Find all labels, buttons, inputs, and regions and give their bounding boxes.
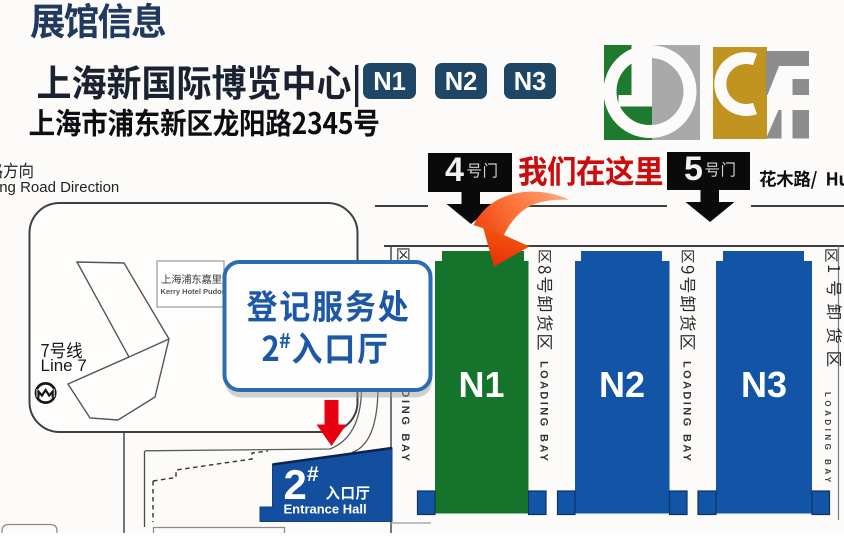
svg-text:Longyang Road Direction: Longyang Road Direction <box>0 179 119 196</box>
svg-text:N1: N1 <box>458 364 504 405</box>
svg-text:LOADING BAY: LOADING BAY <box>538 361 550 463</box>
svg-text:N3: N3 <box>741 364 787 405</box>
svg-text:5: 5 <box>684 150 703 188</box>
svg-text:N2: N2 <box>445 68 478 96</box>
svg-text:Entrance Hall: Entrance Hall <box>284 502 367 517</box>
svg-text:LOADING BAY: LOADING BAY <box>823 392 832 486</box>
svg-text:N2: N2 <box>599 364 645 405</box>
svg-text:#: # <box>307 463 319 486</box>
svg-text:LOADING BAY: LOADING BAY <box>681 361 693 463</box>
svg-text:N3: N3 <box>514 68 547 96</box>
svg-text:Kerry Hotel Pudong: Kerry Hotel Pudong <box>161 287 232 296</box>
svg-text:Line 7: Line 7 <box>41 356 87 375</box>
svg-text:N1: N1 <box>373 68 406 96</box>
svg-text:4: 4 <box>445 151 464 189</box>
